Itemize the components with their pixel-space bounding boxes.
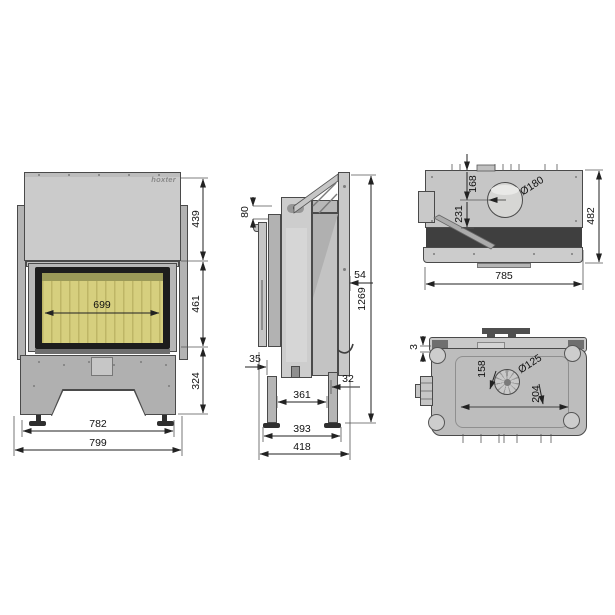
dim-side-rear-offset: 32 [336, 373, 360, 385]
dim-top-width: 785 [489, 270, 519, 282]
dim-bottom-panel-gap: 3 [408, 330, 420, 364]
dim-side-total-height: 1269 [356, 282, 368, 316]
dim-front-glass-height: 461 [190, 287, 202, 321]
dim-side-total-depth: 418 [287, 441, 317, 453]
brand-logo: hoxter [126, 175, 176, 184]
dim-top-depth: 482 [585, 199, 597, 233]
dim-front-hood-height: 439 [190, 202, 202, 236]
dim-side-rail-depth: 54 [348, 269, 372, 281]
dim-top-flue-offset-2: 231 [453, 197, 465, 231]
dim-front-base-height: 324 [190, 364, 202, 398]
dim-front-glass-width: 699 [87, 299, 117, 311]
side-structure-lines [294, 174, 353, 353]
dim-bottom-inlet-offset-2: 204 [530, 377, 542, 411]
technical-drawing-canvas: hoxter 439 461 324 699 782 799 80 54 126… [0, 0, 615, 615]
dim-side-top-offset: 80 [239, 195, 251, 229]
dim-side-legs-span: 361 [287, 389, 317, 401]
dim-top-flue-offset-1: 168 [467, 167, 479, 201]
dim-front-total-width: 799 [83, 437, 113, 449]
bottom-dimension-lines [420, 336, 568, 443]
front-dimension-lines [14, 178, 208, 456]
dim-bottom-inlet-offset-1: 158 [476, 352, 488, 386]
dim-side-front-offset: 35 [243, 353, 267, 365]
dim-front-feet-span: 782 [83, 418, 113, 430]
side-dimension-lines [245, 175, 376, 460]
dim-side-feet-span: 393 [287, 423, 317, 435]
